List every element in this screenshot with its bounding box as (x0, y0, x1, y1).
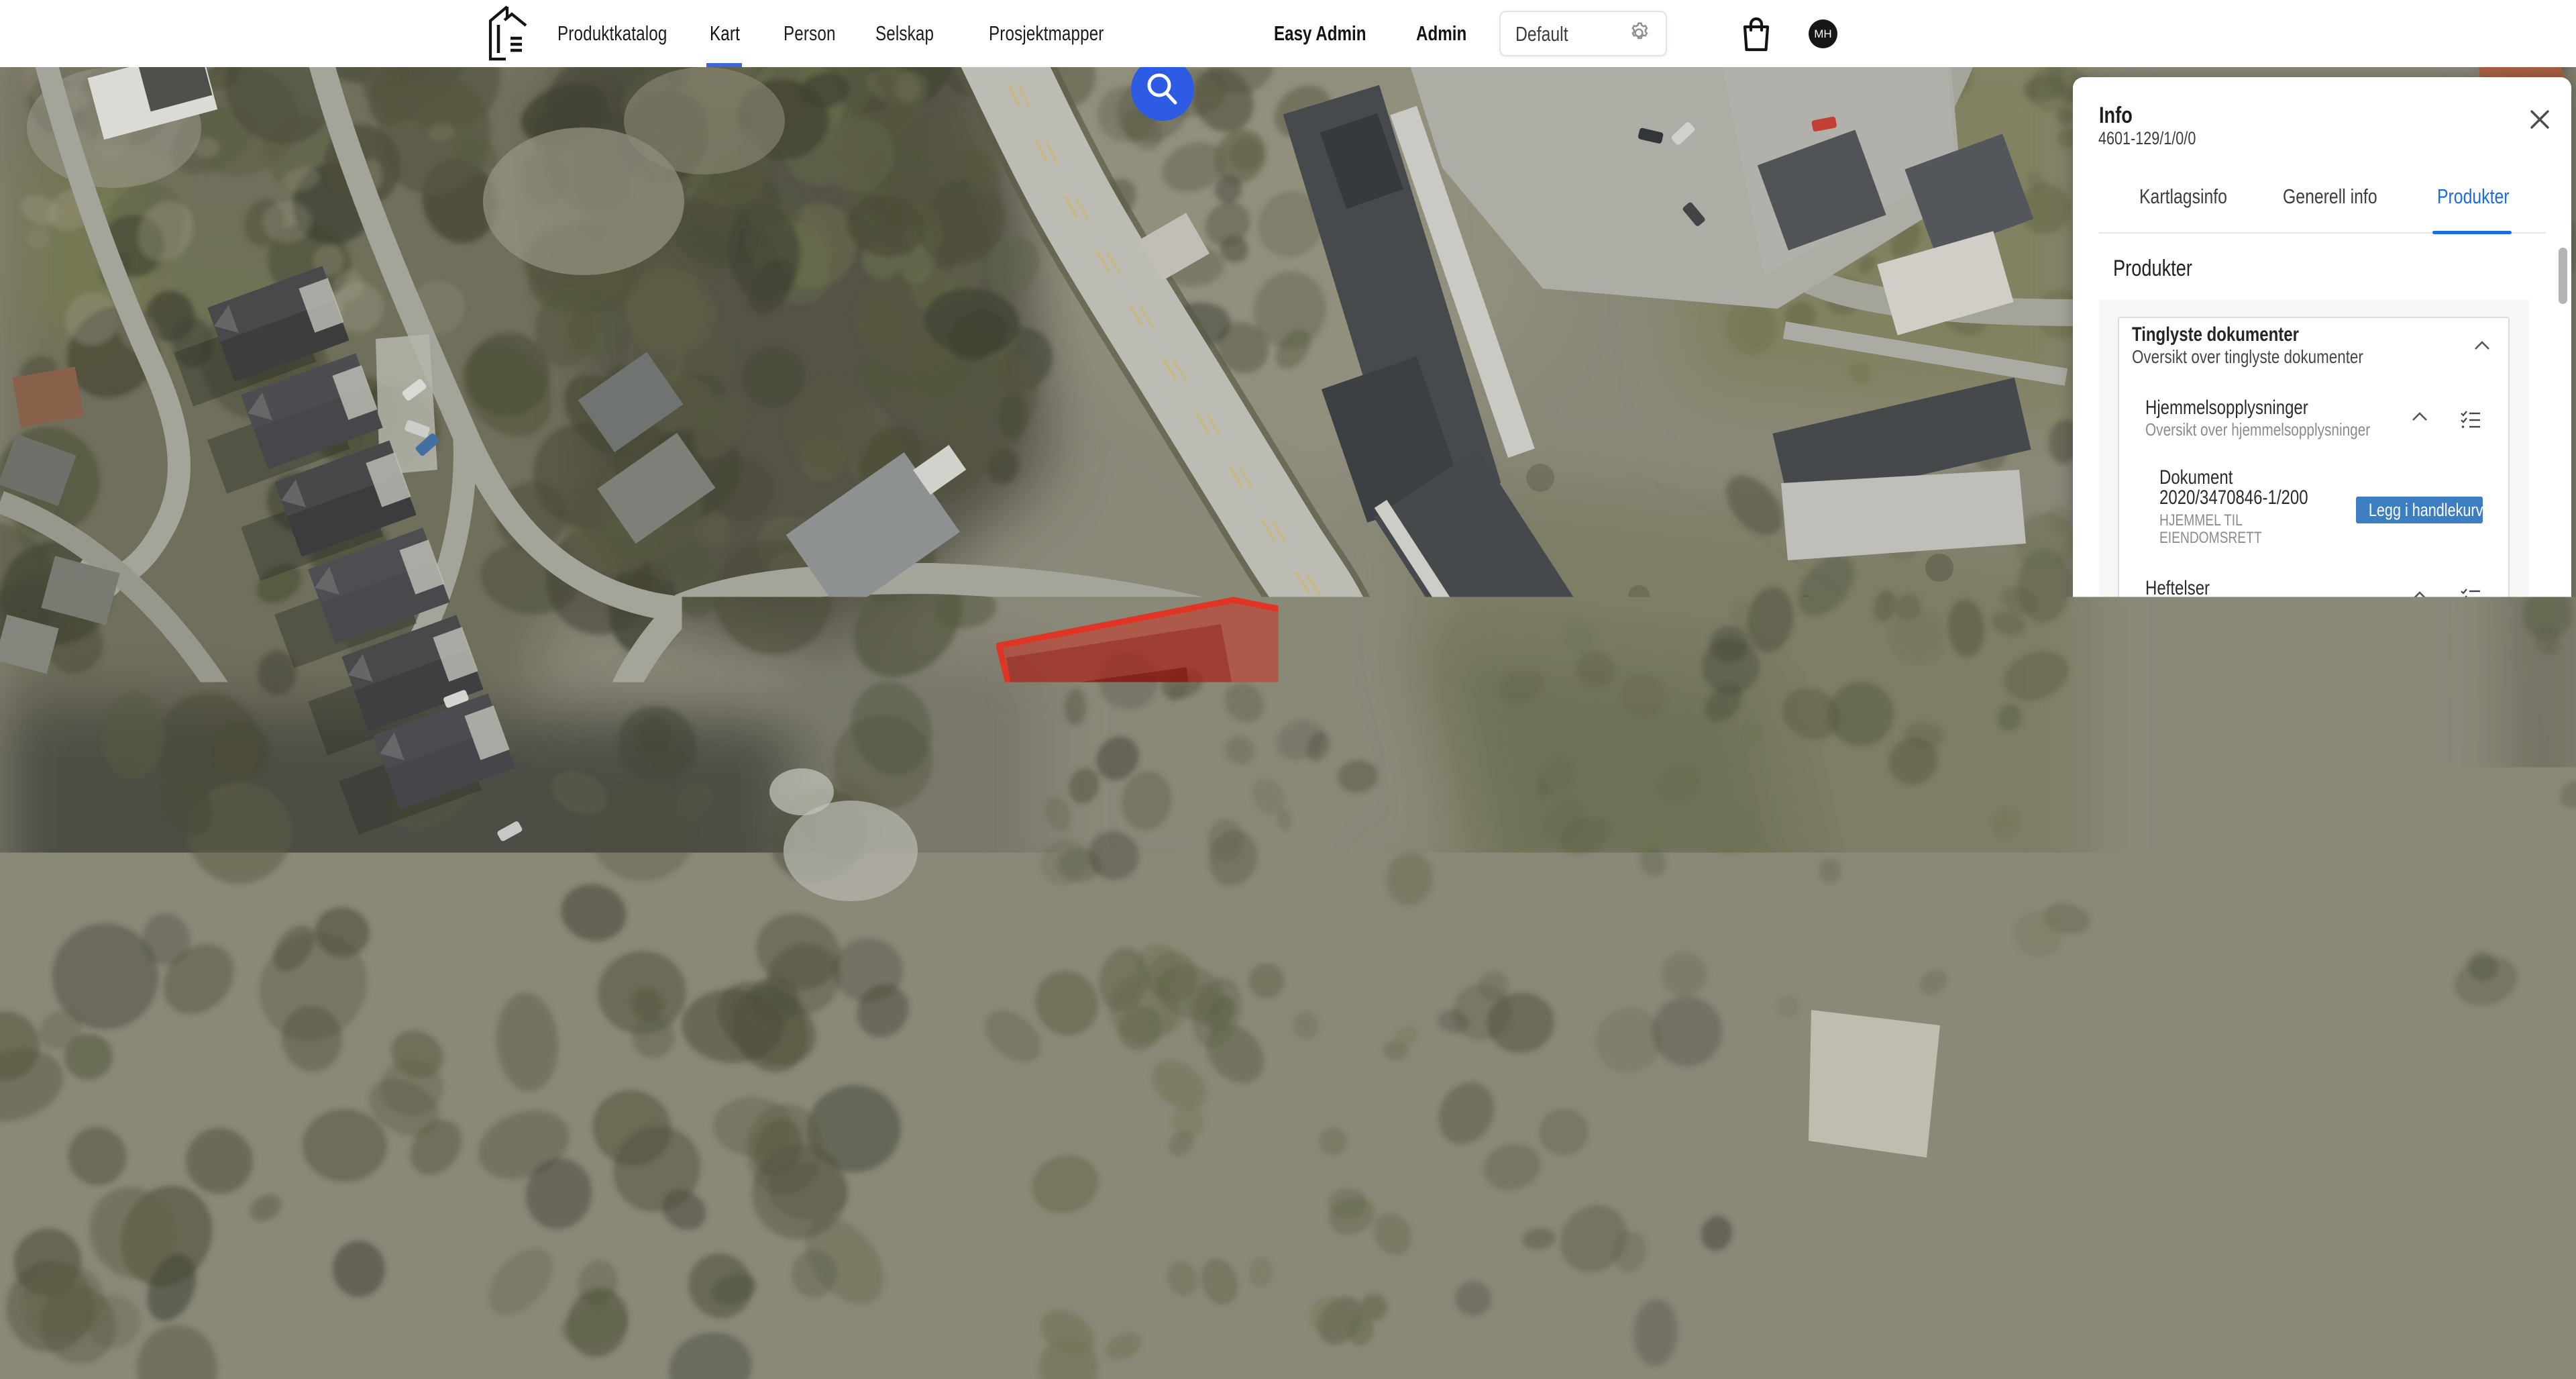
svg-text:© Kartverket, Geovekst og komm: © Kartverket, Geovekst og kommunene (79, 1364, 279, 1377)
